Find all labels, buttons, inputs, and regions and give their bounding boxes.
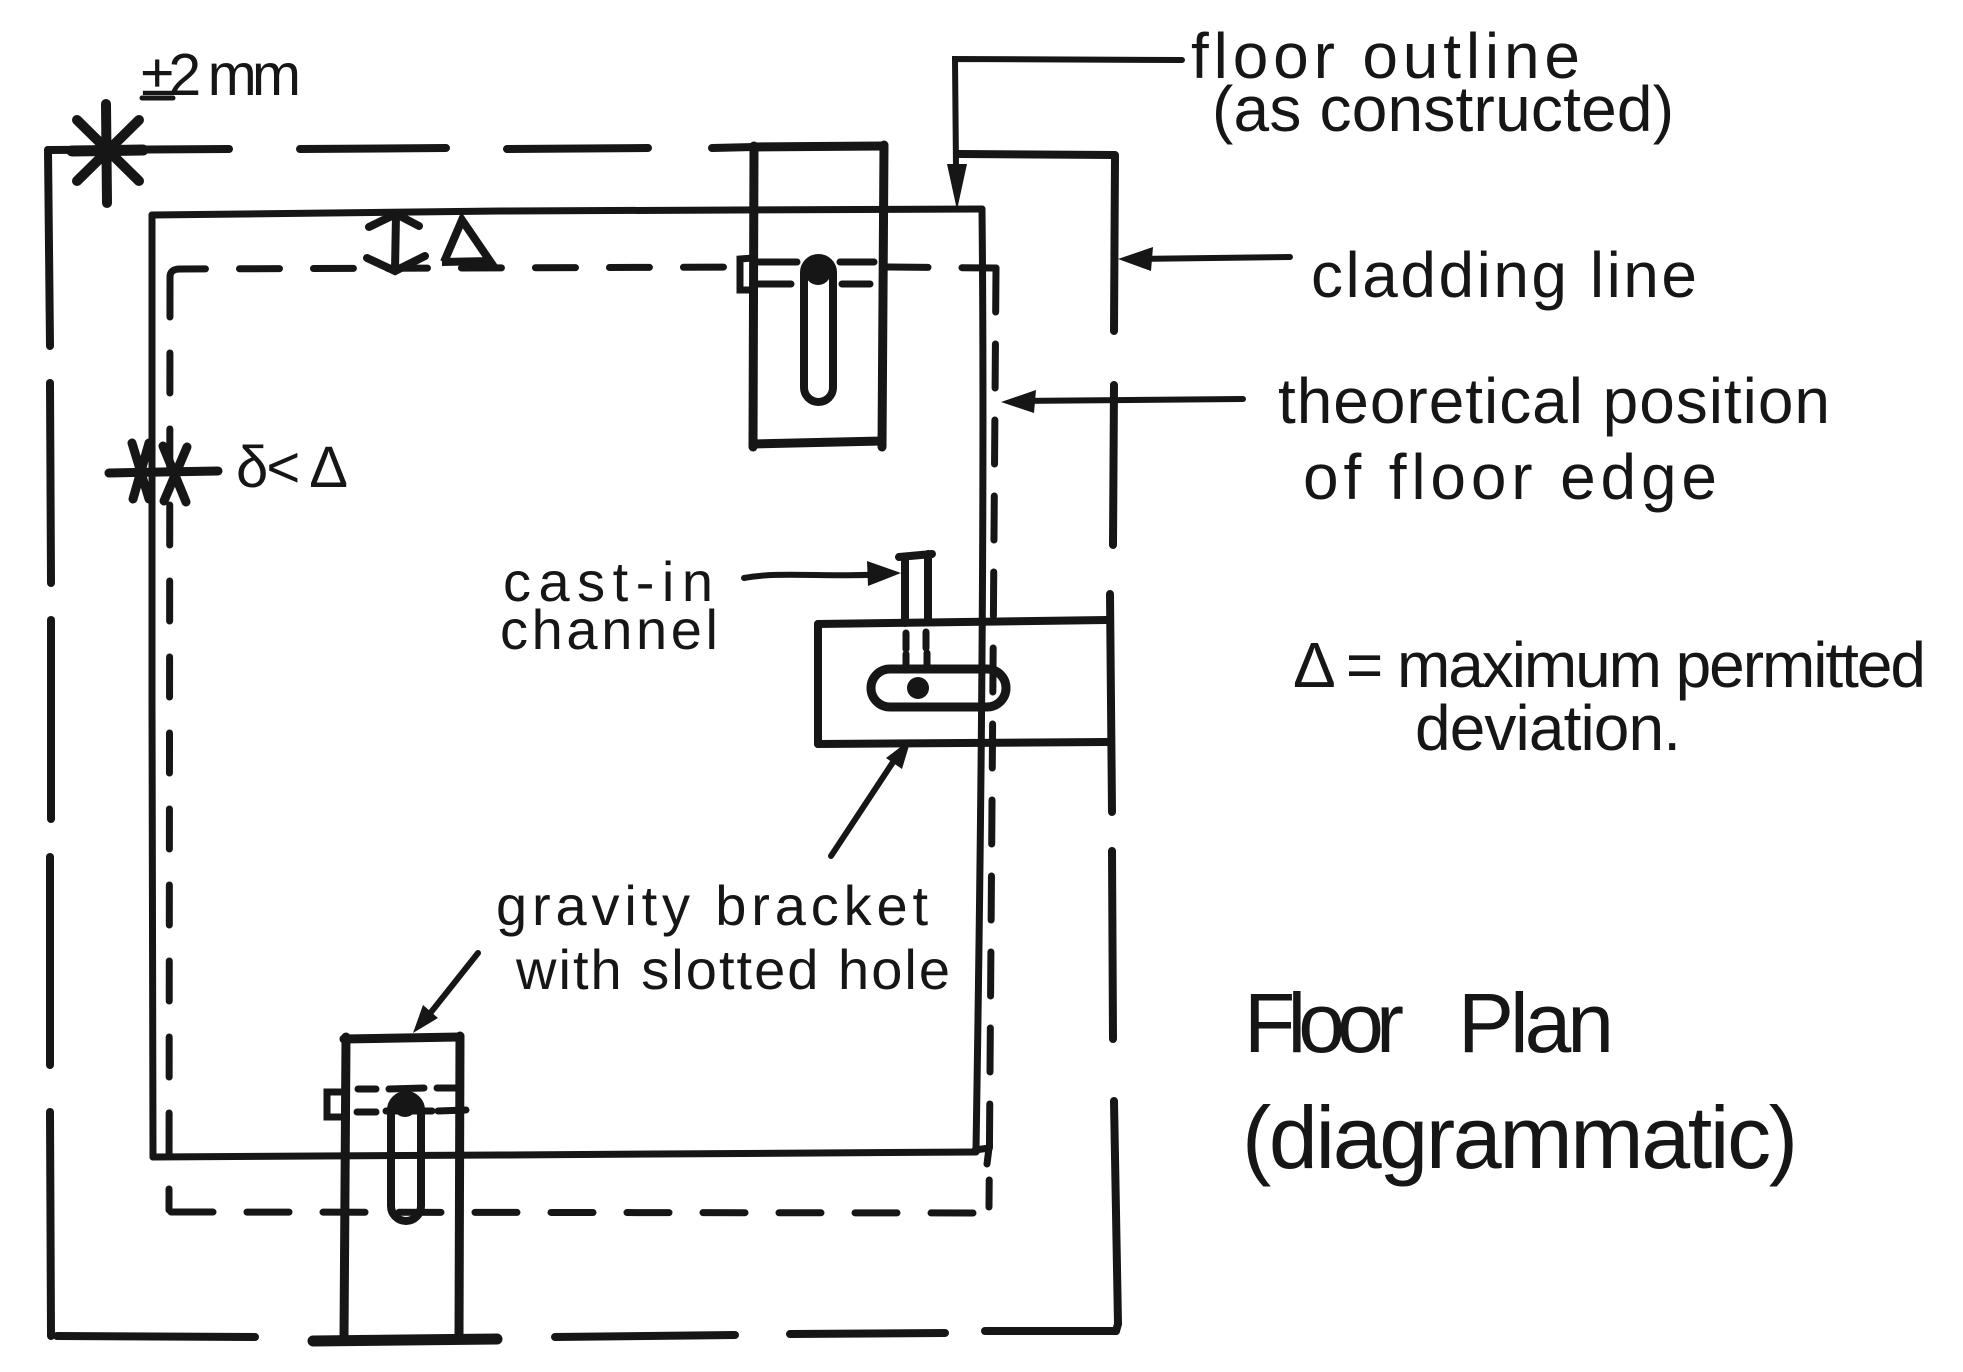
svg-text:deviation.: deviation. [1415,692,1681,764]
svg-text:Floor: Floor [1244,976,1404,1070]
svg-text:theoretical position: theoretical position [1278,365,1830,437]
svg-text:cladding line: cladding line [1311,239,1697,311]
svg-text:±2 mm: ±2 mm [141,42,301,108]
svg-text:(as constructed): (as constructed) [1212,73,1674,145]
svg-text:of floor edge: of floor edge [1303,441,1717,513]
svg-text:channel: channel [500,598,718,661]
svg-text:gravity bracket: gravity bracket [496,874,928,937]
svg-text:(diagrammatic): (diagrammatic) [1242,1088,1798,1187]
svg-text:Plan: Plan [1458,976,1614,1070]
svg-text:Δ = maximum permitted: Δ = maximum permitted [1293,629,1926,701]
svg-text:with slotted hole: with slotted hole [515,938,950,1001]
svg-text:δ< Δ: δ< Δ [236,435,348,500]
